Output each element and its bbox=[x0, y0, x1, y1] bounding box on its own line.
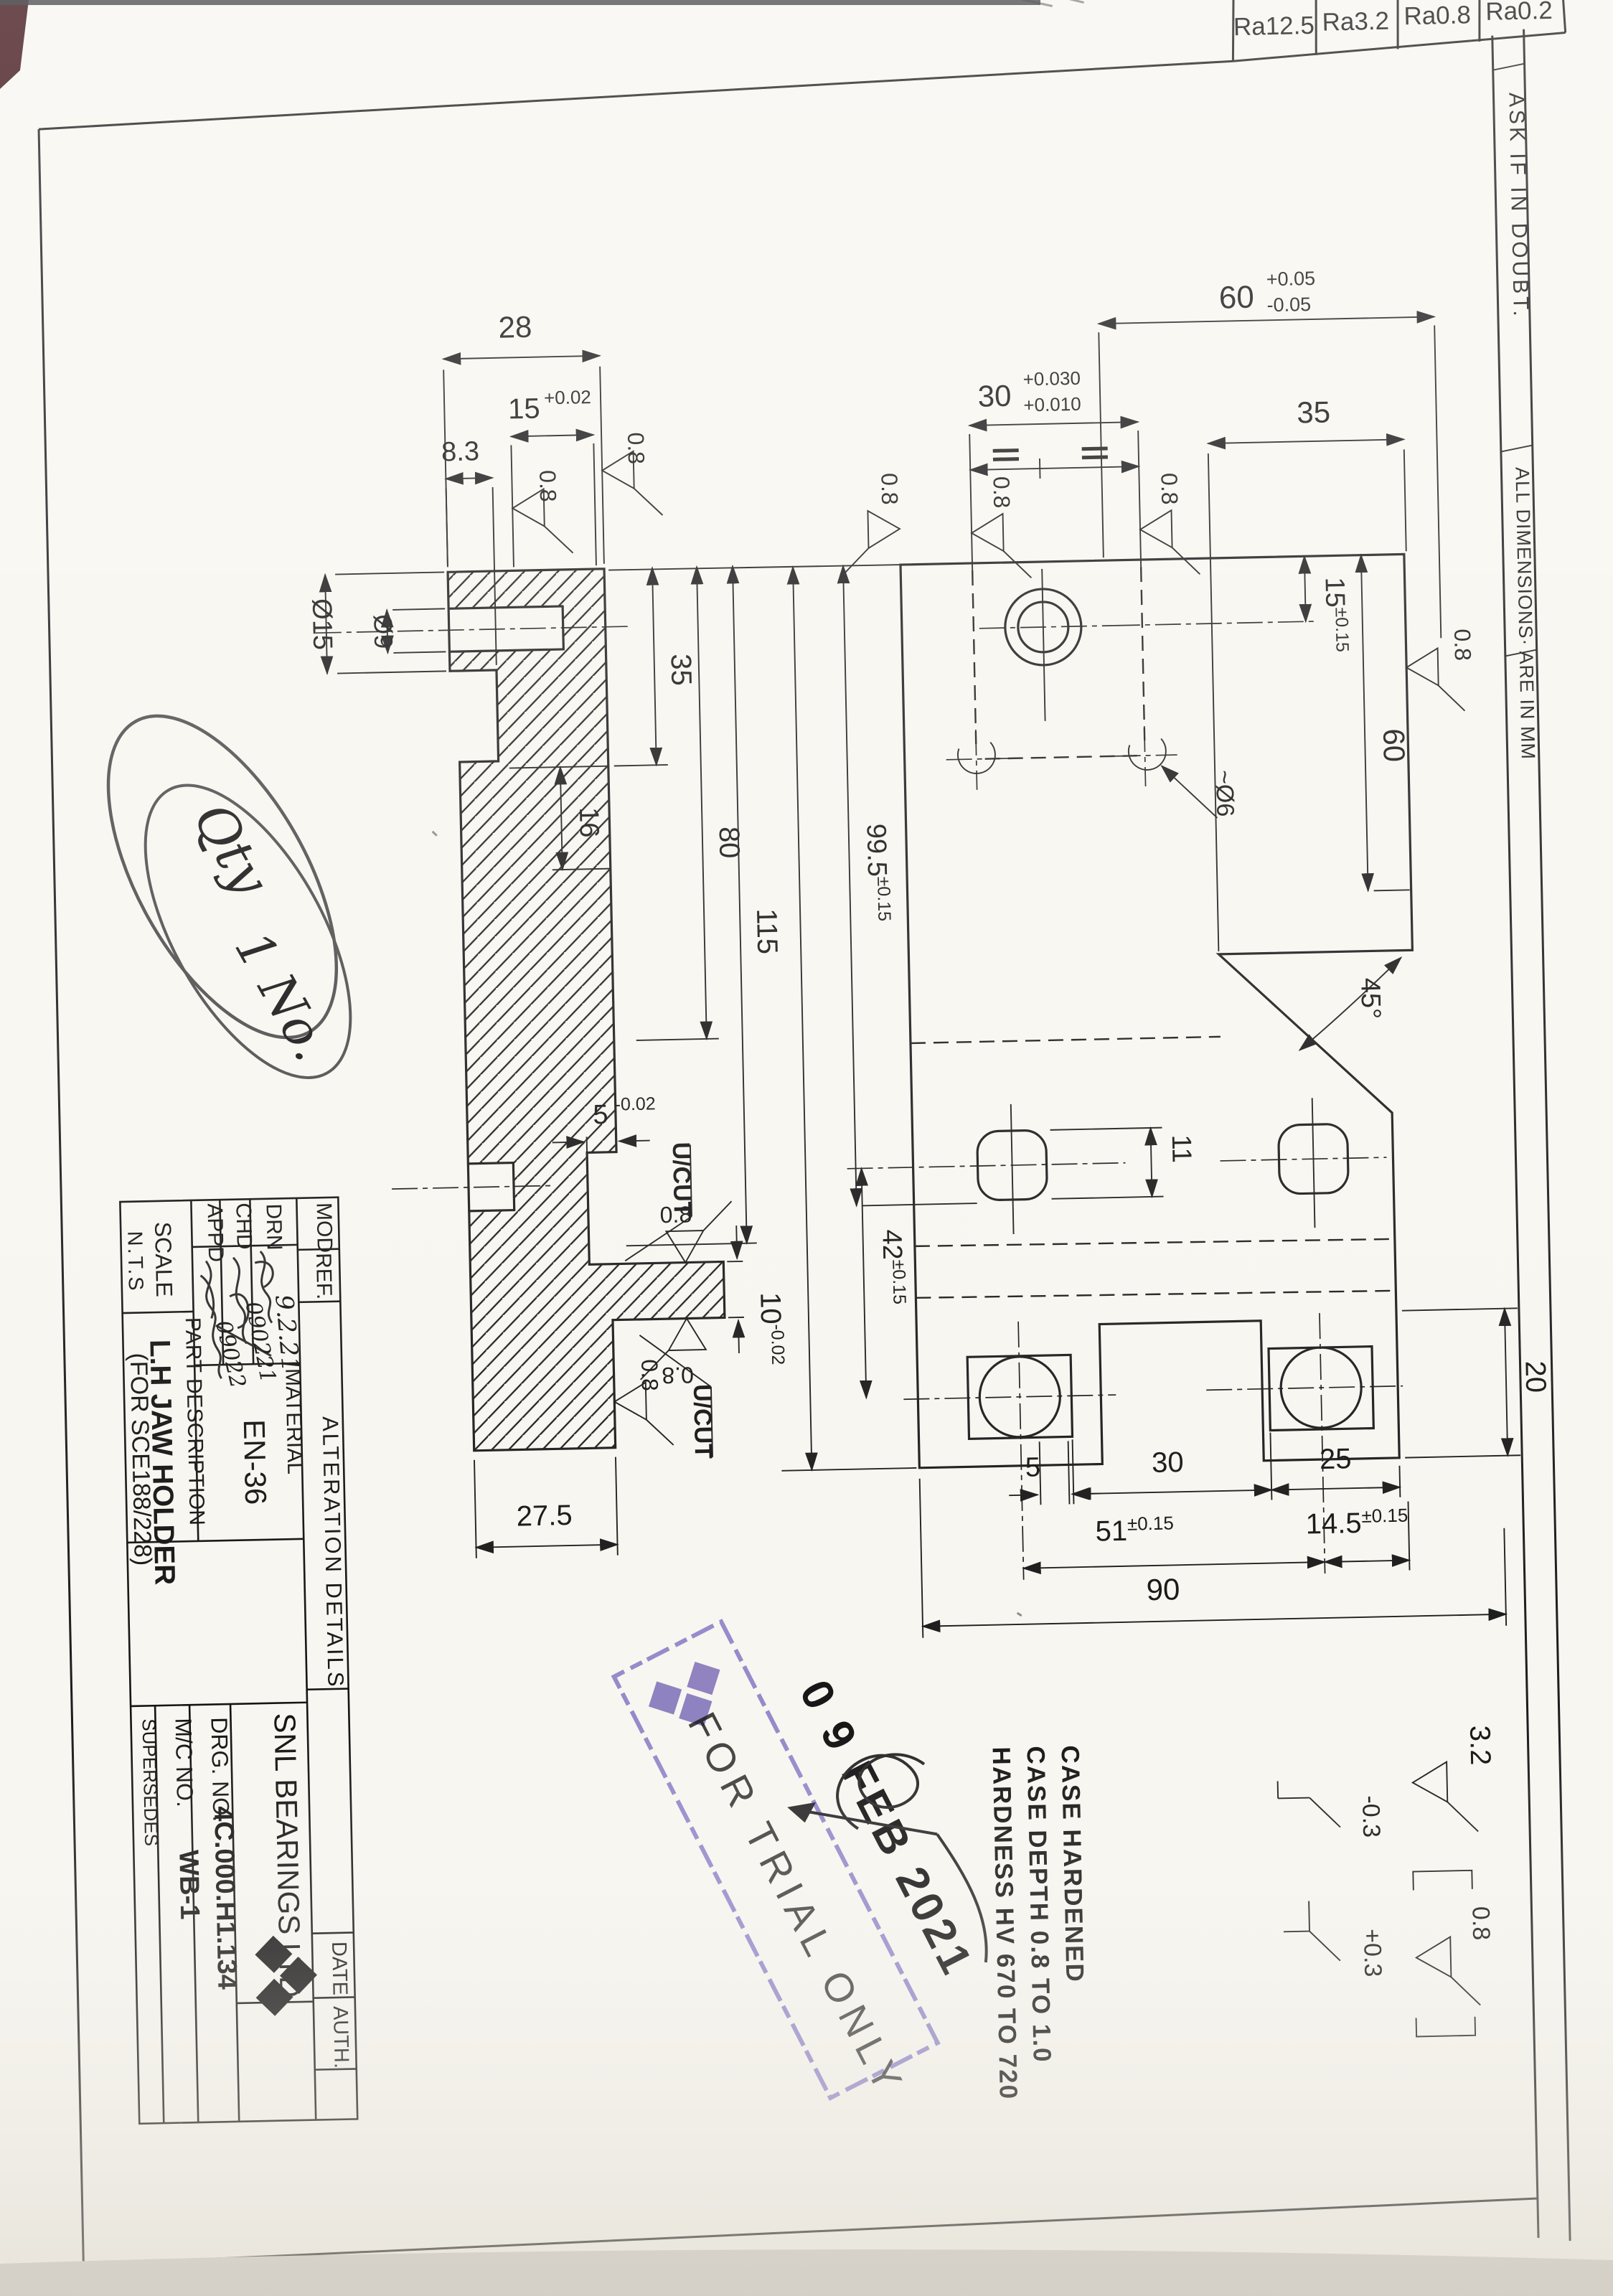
drawing-canvas: Ra12.5 Ra3.2 Ra0.8 Ra0.2 ASK IF IN DOUBT… bbox=[0, 0, 1613, 2296]
paper-shading bbox=[0, 0, 1613, 2296]
scanned-drawing-sheet: Ra12.5 Ra3.2 Ra0.8 Ra0.2 ASK IF IN DOUBT… bbox=[0, 0, 1613, 2296]
